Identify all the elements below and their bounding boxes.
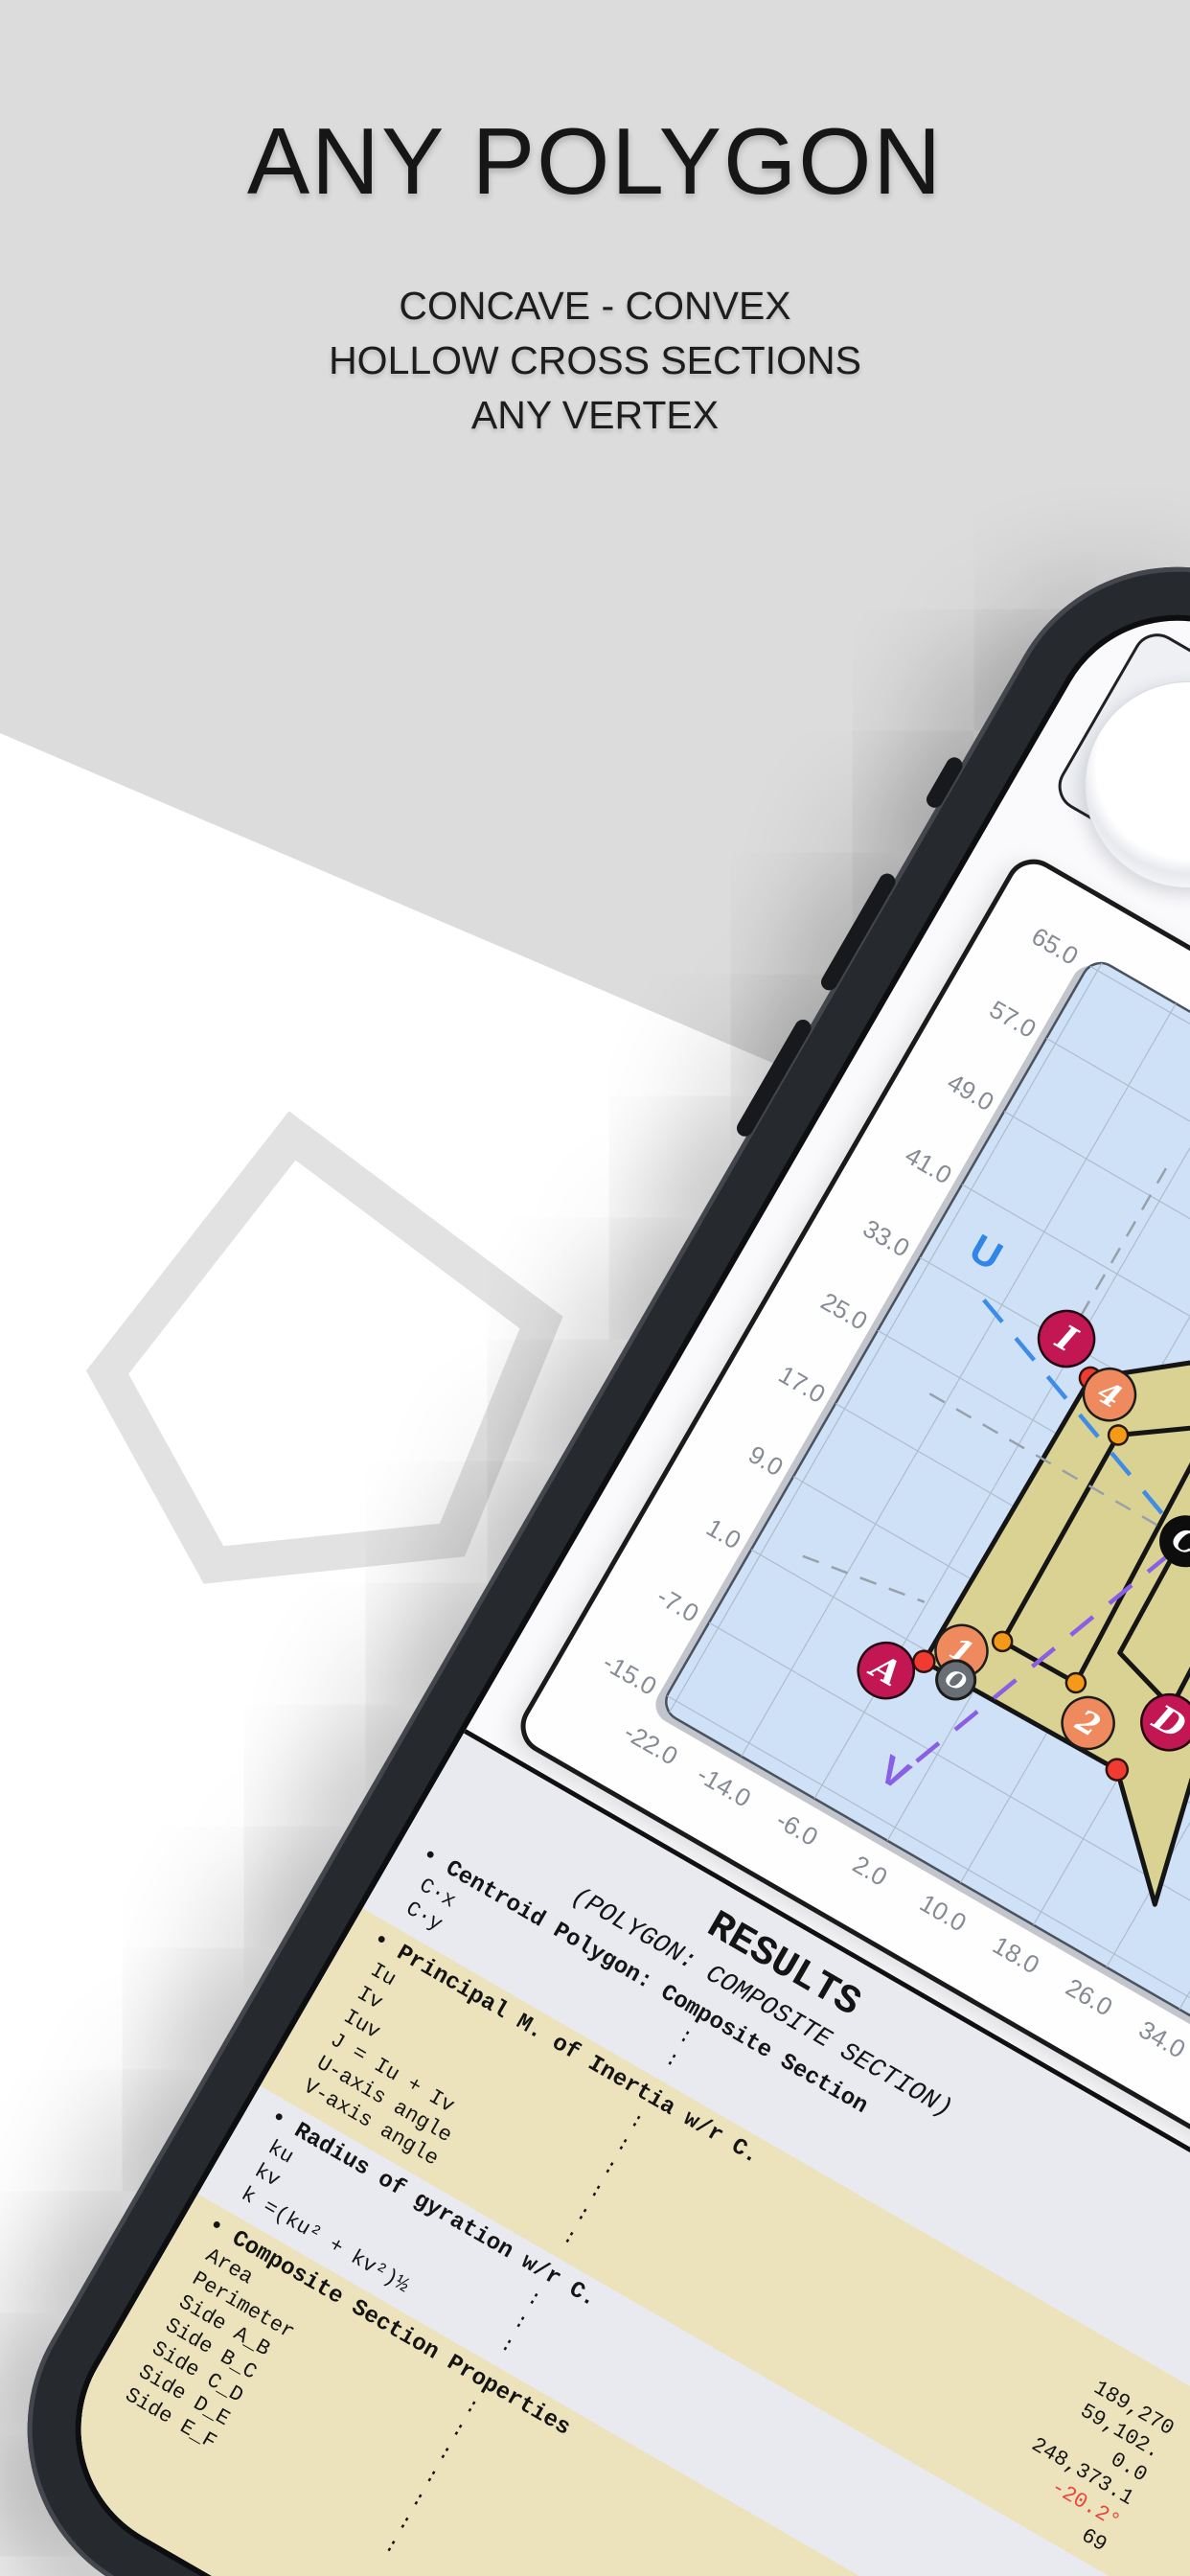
hero-subtitle-line-1: CONCAVE - CONVEX	[0, 279, 1190, 333]
hero-subtitle-line-2: HOLLOW CROSS SECTIONS	[0, 333, 1190, 388]
hero-title: ANY POLYGON	[0, 107, 1190, 216]
app-store-screenshot: ANY POLYGON CONCAVE - CONVEX HOLLOW CROS…	[0, 0, 1190, 2576]
hero-subtitle: CONCAVE - CONVEX HOLLOW CROSS SECTIONS A…	[0, 279, 1190, 443]
hero-subtitle-line-3: ANY VERTEX	[0, 388, 1190, 443]
hero-text-block: ANY POLYGON CONCAVE - CONVEX HOLLOW CROS…	[0, 0, 1190, 443]
